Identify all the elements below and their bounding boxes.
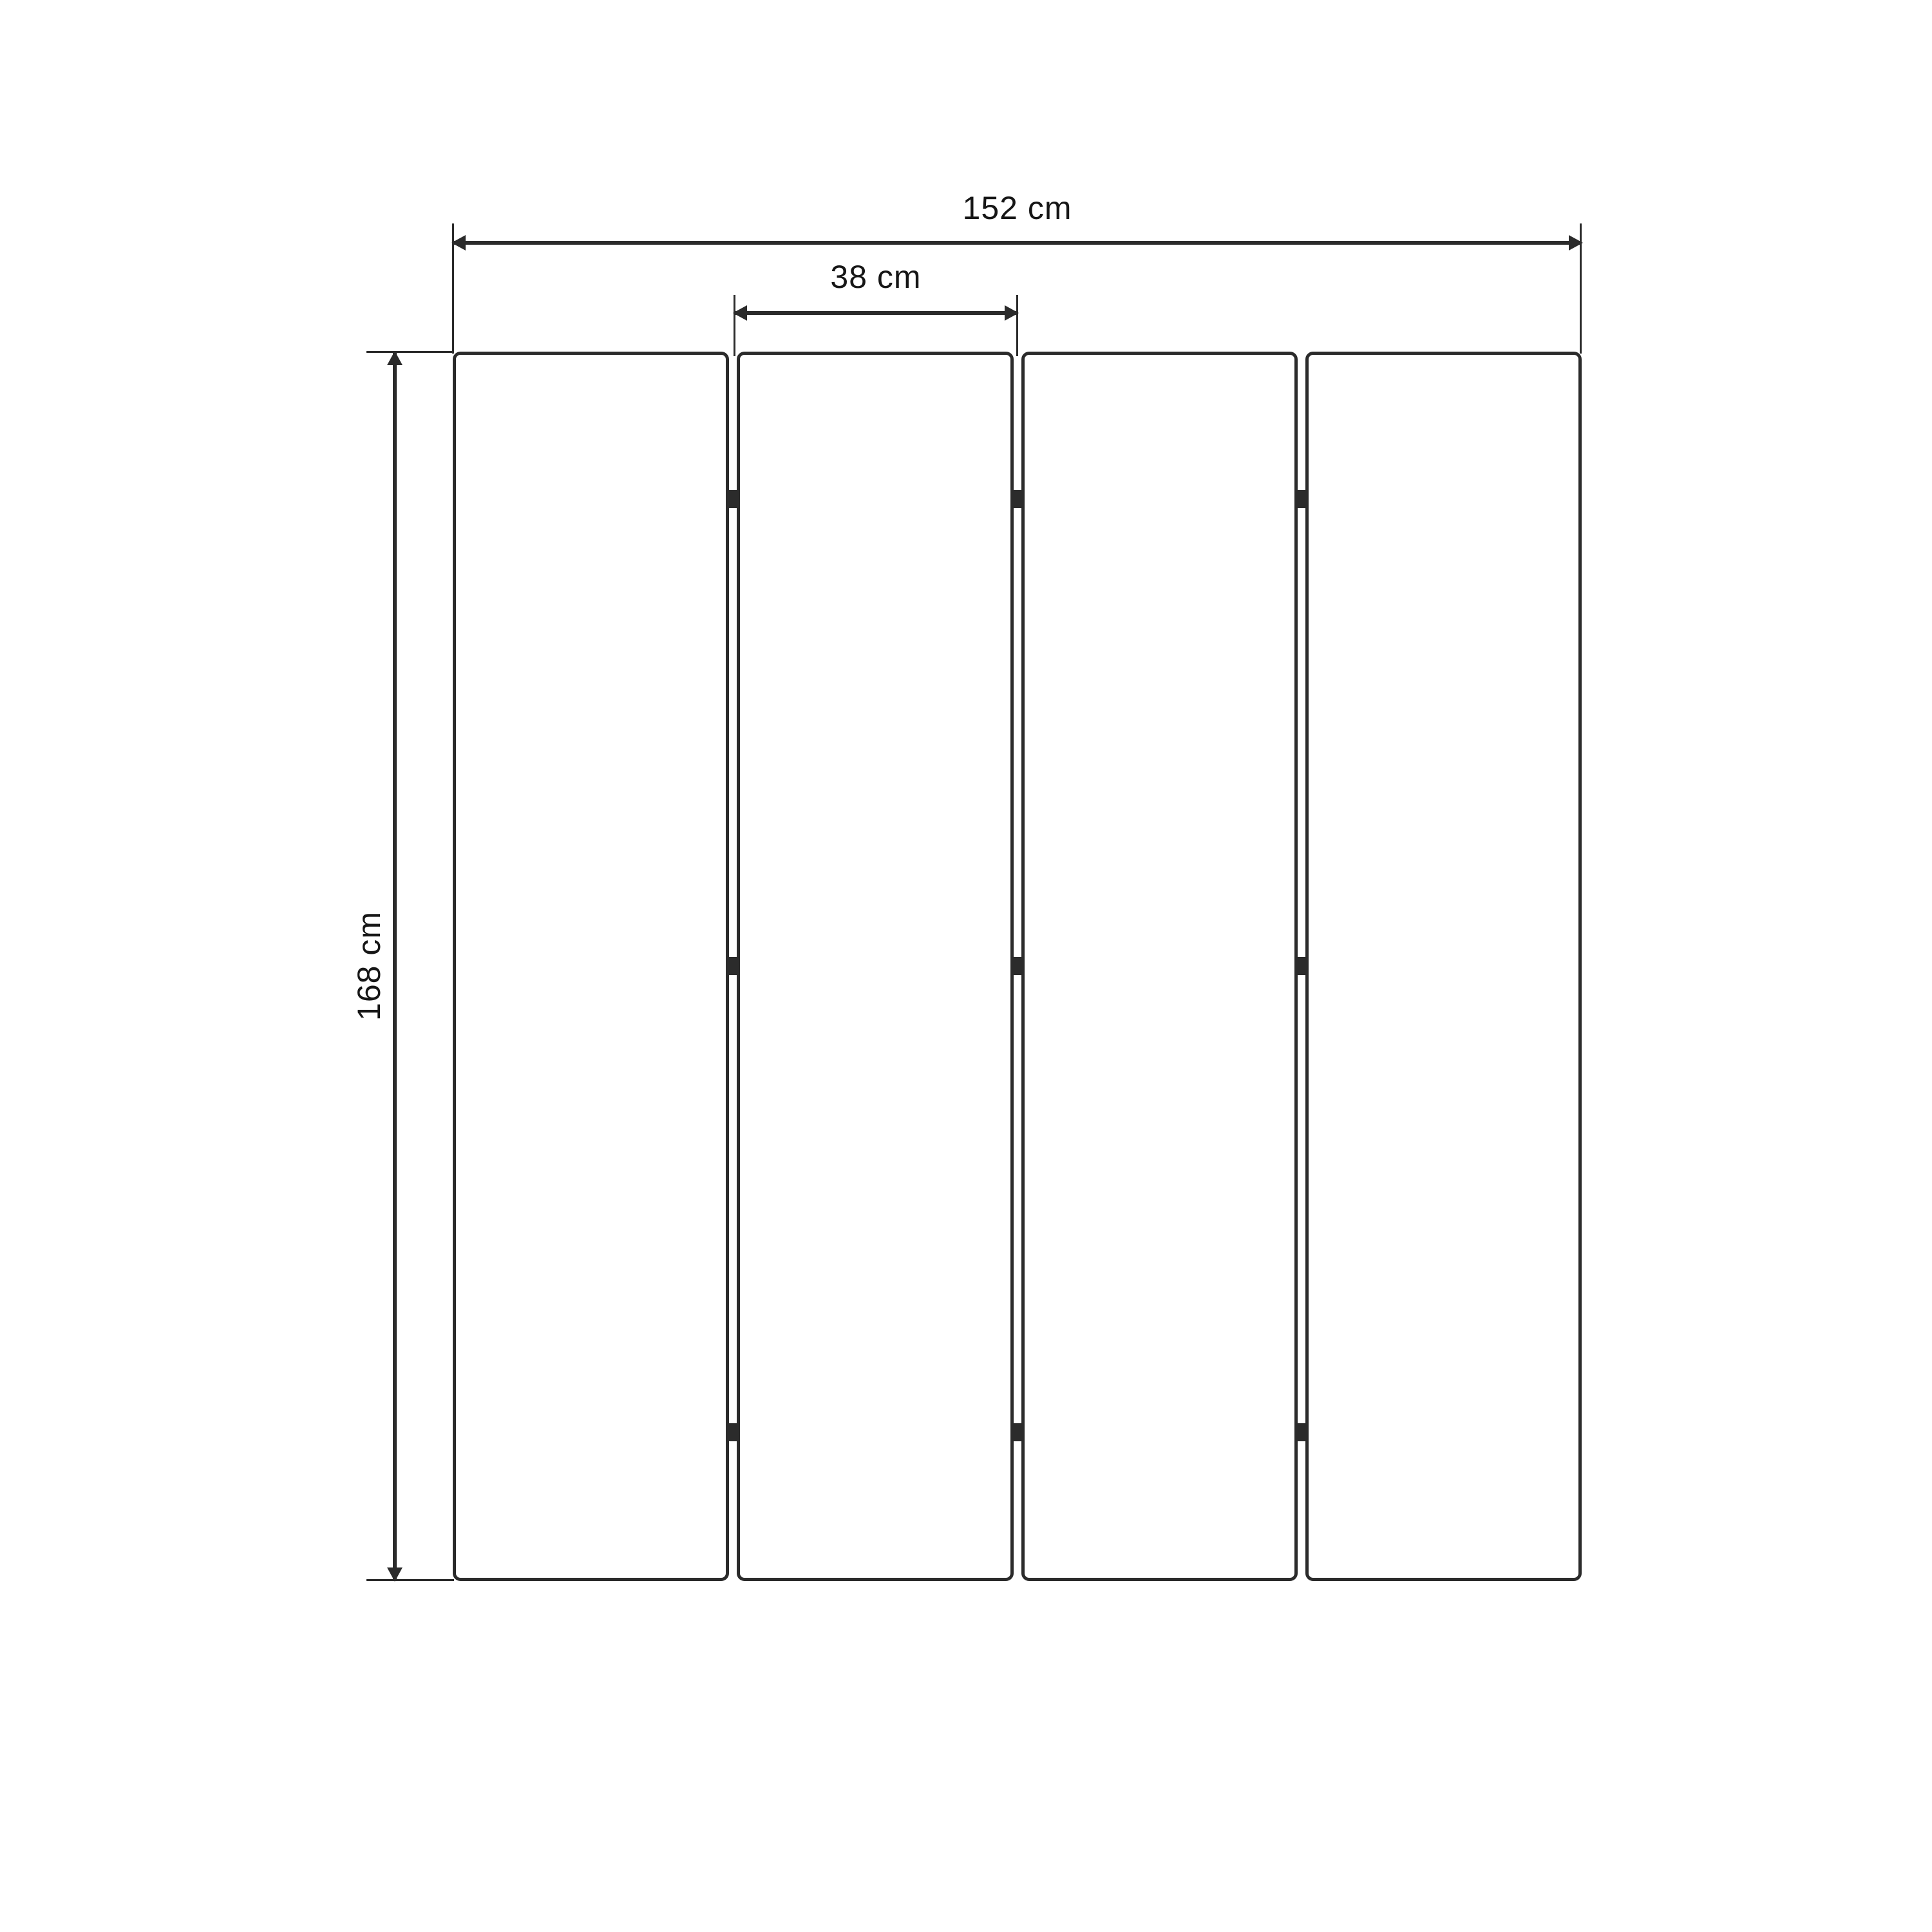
- panel-row: [453, 352, 1582, 1581]
- extension-line-total-left: [452, 223, 454, 354]
- panel-4: [1305, 352, 1582, 1581]
- panel-1: [453, 352, 729, 1581]
- extension-line-total-right: [1580, 223, 1582, 354]
- hinge-mark-gap1-row3: [728, 1423, 737, 1441]
- extension-line-panel-left: [734, 295, 735, 356]
- extension-line-bottom-left: [366, 1579, 454, 1581]
- hinge-mark-gap1-row1: [728, 490, 737, 508]
- extension-line-top-left: [366, 351, 454, 353]
- hinge-mark-gap2-row1: [1013, 490, 1022, 508]
- panel-width-label: 38 cm: [734, 261, 1018, 293]
- hinge-mark-gap2-row3: [1013, 1423, 1022, 1441]
- dimension-diagram: 152 cm 38 cm 168 cm: [0, 0, 1932, 1932]
- hinge-mark-gap1-row2: [728, 957, 737, 975]
- hinge-mark-gap2-row2: [1013, 957, 1022, 975]
- total-width-dimension-line: [453, 241, 1582, 245]
- panel-2: [737, 352, 1013, 1581]
- hinge-mark-gap3-row1: [1297, 490, 1306, 508]
- height-dimension-line: [393, 352, 397, 1580]
- panel-3: [1021, 352, 1298, 1581]
- arrowhead-up-icon: [387, 351, 402, 365]
- panel-width-dimension-line: [734, 311, 1018, 315]
- hinge-mark-gap3-row3: [1297, 1423, 1306, 1441]
- hinge-mark-gap3-row2: [1297, 957, 1306, 975]
- extension-line-panel-right: [1016, 295, 1018, 356]
- total-width-label: 152 cm: [453, 192, 1582, 224]
